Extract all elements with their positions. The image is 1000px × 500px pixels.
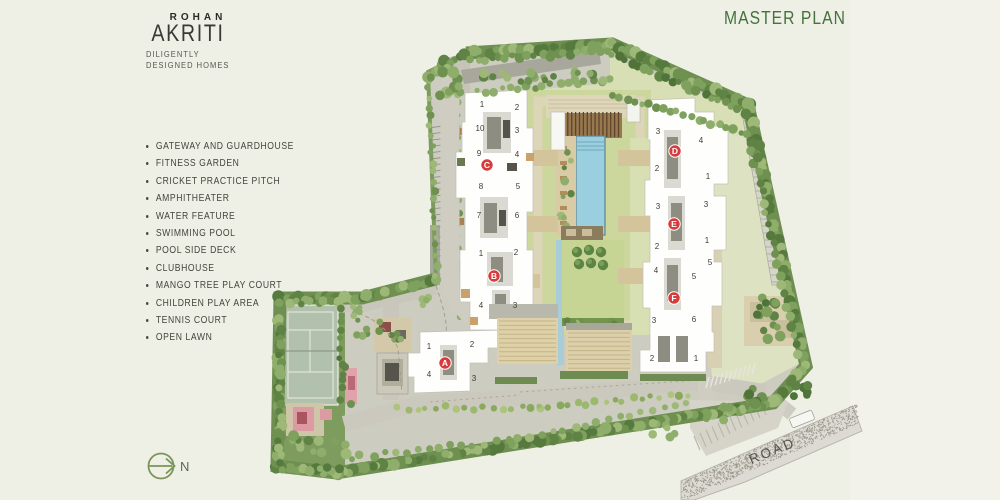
svg-text:4: 4 <box>479 301 484 310</box>
svg-text:1: 1 <box>694 354 699 363</box>
svg-text:2: 2 <box>470 340 475 349</box>
svg-text:2: 2 <box>515 103 520 112</box>
svg-text:E: E <box>671 219 677 229</box>
svg-text:3: 3 <box>515 126 520 135</box>
svg-text:5: 5 <box>516 182 521 191</box>
svg-text:6: 6 <box>515 211 520 220</box>
svg-text:1: 1 <box>480 100 485 109</box>
svg-text:D: D <box>672 146 678 156</box>
svg-text:1: 1 <box>705 236 710 245</box>
svg-text:9: 9 <box>477 149 482 158</box>
svg-text:5: 5 <box>692 272 697 281</box>
svg-text:F: F <box>671 293 676 303</box>
svg-text:A: A <box>442 358 448 368</box>
svg-text:7: 7 <box>477 211 482 220</box>
svg-text:2: 2 <box>655 242 660 251</box>
svg-text:2: 2 <box>514 248 519 257</box>
svg-text:C: C <box>484 160 490 170</box>
svg-text:10: 10 <box>476 124 485 133</box>
svg-text:1: 1 <box>479 249 484 258</box>
svg-text:4: 4 <box>699 136 704 145</box>
svg-text:3: 3 <box>656 127 661 136</box>
svg-text:4: 4 <box>654 266 659 275</box>
svg-text:8: 8 <box>479 182 484 191</box>
svg-text:2: 2 <box>650 354 655 363</box>
svg-text:3: 3 <box>704 200 709 209</box>
svg-text:B: B <box>491 271 497 281</box>
svg-text:3: 3 <box>472 374 477 383</box>
svg-text:5: 5 <box>708 258 713 267</box>
svg-text:1: 1 <box>706 172 711 181</box>
svg-text:4: 4 <box>515 150 520 159</box>
svg-text:2: 2 <box>655 164 660 173</box>
svg-text:4: 4 <box>427 370 432 379</box>
svg-text:N: N <box>180 459 189 474</box>
svg-text:3: 3 <box>652 316 657 325</box>
svg-text:3: 3 <box>656 202 661 211</box>
svg-text:6: 6 <box>692 315 697 324</box>
svg-text:1: 1 <box>427 342 432 351</box>
svg-text:3: 3 <box>513 301 518 310</box>
